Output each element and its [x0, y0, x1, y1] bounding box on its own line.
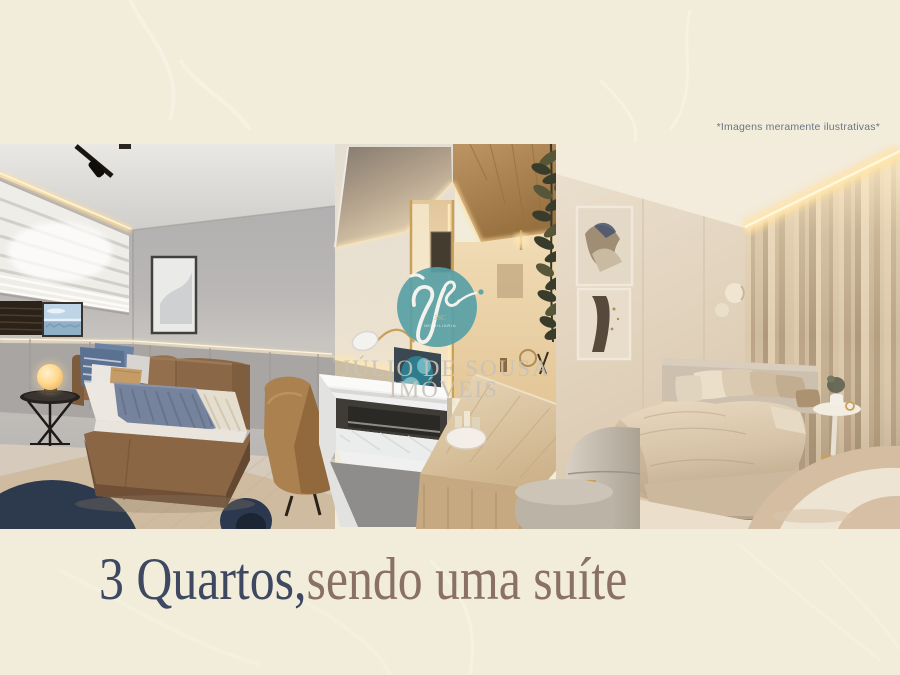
- svg-text:IMOBILIARIA: IMOBILIARIA: [424, 323, 457, 328]
- svg-text:JSC: JSC: [434, 314, 446, 322]
- svg-text:IMÓVEIS: IMÓVEIS: [389, 376, 499, 402]
